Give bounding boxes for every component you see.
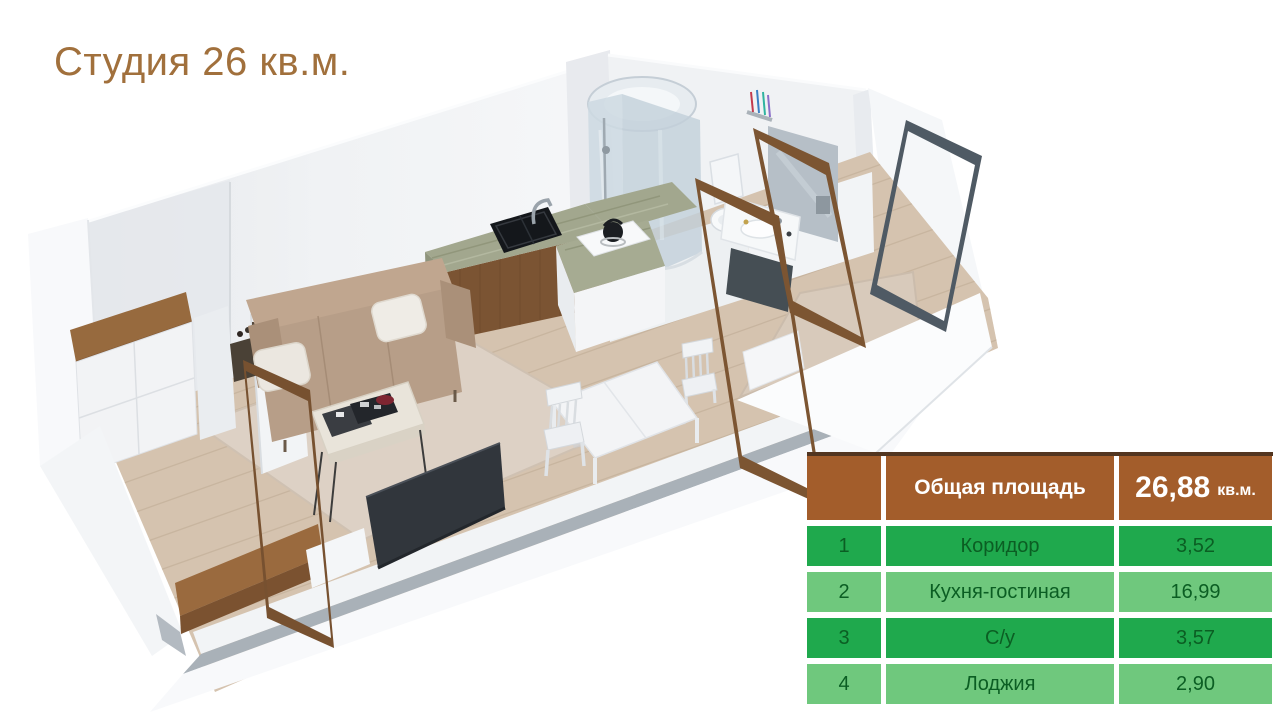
row-number: 2 (807, 572, 881, 612)
total-area-unit: кв.м. (1217, 482, 1256, 500)
row-number: 4 (807, 664, 881, 704)
table-row: 3 С/у 3,57 (807, 618, 1273, 658)
table-row: 4 Лоджия 2,90 (807, 664, 1273, 704)
total-area-value: 26,88 (1135, 471, 1210, 505)
room-name: Кухня-гостиная (886, 572, 1114, 612)
room-name: Коридор (886, 526, 1114, 566)
room-area: 3,52 (1119, 526, 1272, 566)
room-area: 2,90 (1119, 664, 1272, 704)
row-number: 3 (807, 618, 881, 658)
page-title: Студия 26 кв.м. (54, 40, 350, 84)
header-label: Общая площадь (886, 456, 1114, 520)
table-row: 1 Коридор 3,52 (807, 526, 1273, 566)
table-row: 2 Кухня-гостиная 16,99 (807, 572, 1273, 612)
area-table: Общая площадь 26,88 кв.м. 1 Коридор 3,52… (807, 452, 1273, 704)
room-name: Лоджия (886, 664, 1114, 704)
row-number: 1 (807, 526, 881, 566)
room-area: 3,57 (1119, 618, 1272, 658)
header-total: 26,88 кв.м. (1119, 456, 1272, 520)
room-name: С/у (886, 618, 1114, 658)
table-header-row: Общая площадь 26,88 кв.м. (807, 456, 1273, 520)
header-empty-cell (807, 456, 881, 520)
room-area: 16,99 (1119, 572, 1272, 612)
red-bowl (376, 395, 394, 405)
